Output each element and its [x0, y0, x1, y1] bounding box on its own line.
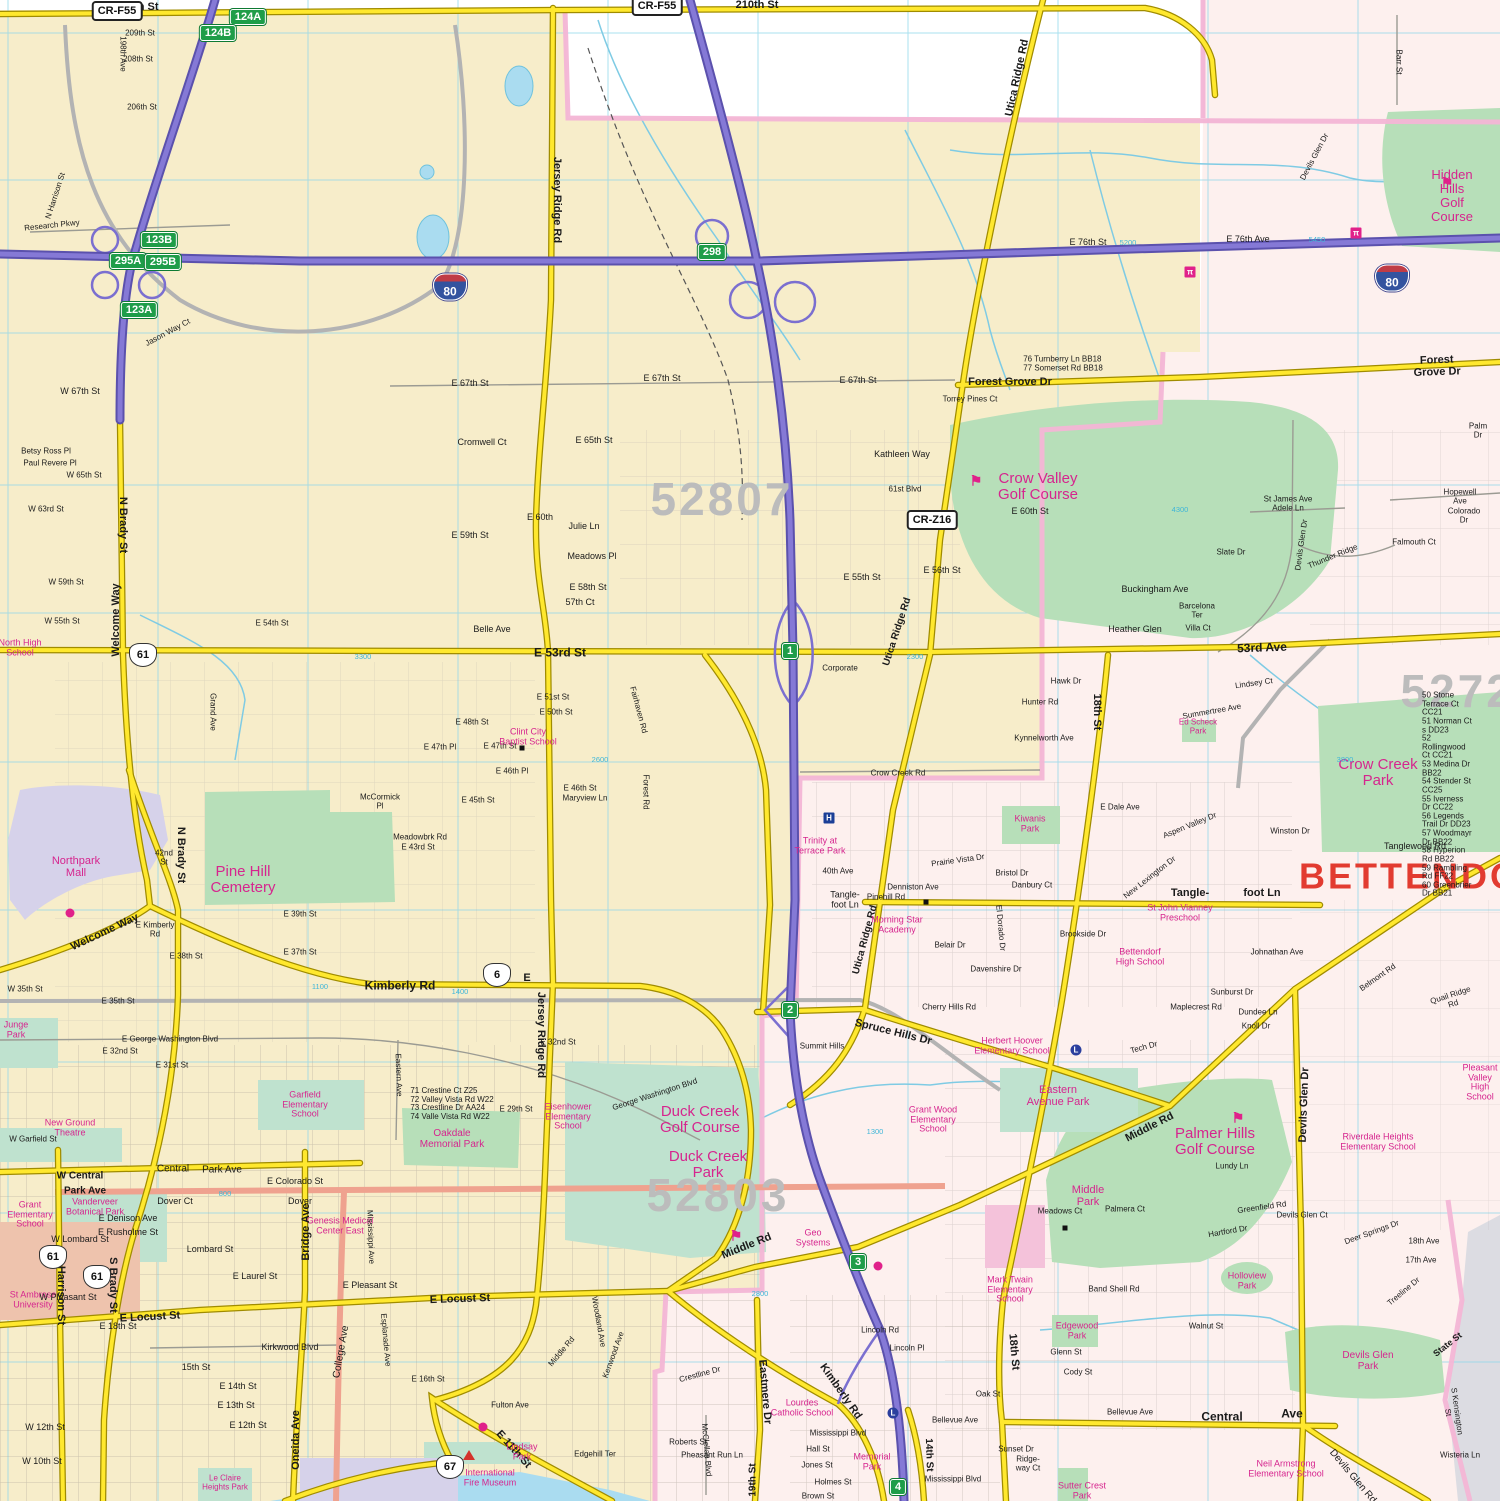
map-label: 209th St — [125, 30, 155, 39]
museum-icon — [463, 1450, 475, 1460]
map-label: Slate Dr — [1217, 549, 1246, 558]
map-label: E Colorado St — [267, 1177, 323, 1187]
map-label: E 32nd St — [540, 1039, 575, 1048]
map-label: McClellan Blvd — [699, 1423, 712, 1476]
map-label: W 55th St — [44, 618, 79, 627]
map-label: Vanderveer Botanical Park — [66, 1197, 124, 1216]
map-label: El Dorado Dr — [994, 905, 1007, 952]
map-label: Treeline Dr — [1386, 1276, 1422, 1308]
map-label: E 11th St — [493, 1429, 533, 1471]
map-label: Tangle- — [1171, 888, 1209, 900]
map-label: Clint City Baptist School — [499, 727, 557, 746]
map-label: 19th St — [749, 1463, 760, 1496]
map-label: 52722 — [1401, 667, 1500, 717]
map-label: Oneida Ave — [291, 1410, 303, 1470]
map-label: Winston Dr — [1270, 828, 1310, 837]
map-label: Maryview Ln — [563, 795, 608, 804]
map-label: Crestline Dr — [678, 1365, 721, 1384]
map-label: 17th Ave — [1406, 1257, 1437, 1266]
map-label: New Lexington Dr — [1122, 855, 1177, 901]
map-label: Betsy Ross Pl — [21, 448, 71, 457]
map-label: 1400 — [452, 988, 469, 996]
county-shield: CR-Z16 — [907, 510, 958, 530]
map-label: Ed Scheck Park — [1179, 718, 1217, 735]
map-label: Sunburst Dr — [1211, 989, 1254, 998]
map-label: Prairie Vista Dr — [931, 853, 985, 869]
map-label: Geo Systems — [796, 1228, 831, 1247]
exit-shield: 3 — [850, 1254, 866, 1270]
map-label: Cherry Hills Rd — [922, 1004, 976, 1013]
map-label: Kimberly Rd — [817, 1362, 864, 1422]
map-label: Herbert Hoover Elementary School — [974, 1036, 1050, 1055]
map-label: Lombard St — [187, 1245, 234, 1255]
map-label: Jason Way Ct — [144, 318, 192, 349]
map-label: Utica Ridge Rd — [882, 597, 914, 668]
map-label: Woodland Ave — [589, 1296, 606, 1348]
map-label: Mississippi Ave — [365, 1210, 376, 1264]
map-label: Forest Grove Dr — [1405, 354, 1469, 380]
map-label: 5200 — [1120, 239, 1137, 247]
map-label: Bellevue Ave — [1107, 1409, 1153, 1418]
map-label: E 46th St — [564, 785, 597, 794]
map-label: Denniston Ave — [887, 884, 938, 893]
map-label: 198th Ave — [118, 36, 127, 71]
map-label: 76 Turnberry Ln BB18 77 Somerset Rd BB18 — [1023, 355, 1103, 372]
map-label: Central — [1201, 1411, 1242, 1424]
map-label: E Denison Ave — [99, 1214, 158, 1224]
map-label: 61st Blvd — [889, 486, 922, 495]
map-label: Mark Twain Elementary School — [987, 1275, 1033, 1304]
map-label: Johnathan Ave — [1251, 949, 1304, 958]
map-label: E 14th St — [219, 1382, 256, 1392]
map-label: Cody St — [1064, 1369, 1092, 1378]
exit-shield: 295A — [110, 253, 146, 269]
map-label: E 56th St — [923, 566, 960, 576]
map-label: Devils Glen Dr — [1298, 1067, 1312, 1143]
map-label: Meadowbrk Rd — [393, 834, 447, 843]
map-label: E 76th St — [1069, 238, 1106, 248]
map-label: Holloview Park — [1228, 1271, 1267, 1290]
map-label: Heather Glen — [1108, 625, 1162, 635]
map-label: Walnut St — [1189, 1323, 1223, 1332]
us-shield: 67 — [436, 1455, 464, 1479]
map-label: W 67th St — [60, 387, 100, 397]
map-label: E 35th St — [102, 998, 135, 1007]
map-label: Middle Park — [1072, 1185, 1104, 1209]
map-label: E 45th St — [462, 797, 495, 806]
map-label: Pine Hill Cemetery — [210, 864, 275, 896]
map-label: Deer Springs Dr — [1344, 1219, 1401, 1247]
map-label: Brown St — [802, 1493, 834, 1501]
golf-flag-icon: ⚑ — [1232, 1110, 1245, 1127]
map-label: Jersey Ridge Rd — [534, 992, 546, 1078]
map-label: W 65th St — [66, 472, 101, 481]
map-label: Hartford Dr — [1208, 1224, 1248, 1239]
map-label: E 76th Ave — [1226, 235, 1269, 245]
map-label: Eastmere Dr — [755, 1359, 772, 1425]
map-label: Tangle- foot Ln — [830, 890, 860, 909]
map-label: E 60th — [527, 513, 553, 523]
map-label: Jones St — [801, 1462, 832, 1471]
map-label: Lundy Ln — [1216, 1163, 1249, 1172]
map-label: E 31st St — [156, 1062, 188, 1071]
map-label: Villa Ct — [1185, 625, 1210, 634]
map-label: Grant Wood Elementary School — [909, 1105, 957, 1134]
map-label: Knoll Dr — [1242, 1023, 1270, 1032]
map-label: 42nd St — [155, 849, 173, 866]
map-label: Bettendorf High School — [1116, 947, 1165, 966]
map-label: Middle Rd — [720, 1232, 773, 1263]
map-label: E Pleasant St — [343, 1281, 398, 1291]
map-label: Tanglewood Rd — [1384, 842, 1446, 852]
map-label: State St — [1432, 1331, 1464, 1359]
map-label: Morning Star Academy — [871, 915, 923, 934]
map-label: E — [523, 973, 530, 985]
map-label: Meadows Ct — [1038, 1208, 1082, 1217]
map-label: E 60th St — [1011, 507, 1048, 517]
map-label: Danbury Ct — [1012, 882, 1052, 891]
map-label: E 67th St — [643, 374, 680, 384]
map-label: Forest Rd — [641, 774, 650, 809]
map-label: E 18th St — [99, 1322, 136, 1332]
map-label: W 63rd St — [28, 506, 64, 515]
map-label: Edgewood Park — [1056, 1321, 1099, 1340]
exit-shield: 2 — [782, 1002, 798, 1018]
map-label: Hall St — [806, 1446, 830, 1455]
map-label: Pheasant Run Ln — [681, 1452, 743, 1461]
map-label: E Rusholme St — [98, 1228, 158, 1238]
map-label: E 29th St — [500, 1106, 533, 1115]
school-icon — [520, 746, 525, 751]
us-shield: 61 — [83, 1265, 111, 1289]
map-label: E 32nd St — [102, 1048, 137, 1057]
map-label: E 47th Pl — [424, 744, 456, 753]
map-label: E 12th St — [229, 1421, 266, 1431]
map-label: Buckingham Ave — [1122, 585, 1189, 595]
us-shield: 6 — [483, 963, 511, 987]
map-label: 57th Ct — [565, 598, 594, 608]
map-label: Devils Glen Ct — [1276, 1212, 1327, 1221]
map-label: Fulton Ave — [491, 1402, 529, 1411]
map-label: Hunter Rd — [1022, 699, 1058, 708]
map-label: Quail Ridge Rd — [1427, 984, 1478, 1015]
map-label: Park Ave — [202, 1166, 242, 1177]
map-label: Palmer Hills Golf Course — [1175, 1126, 1255, 1158]
map-label: International Fire Museum — [464, 1468, 517, 1487]
map-label: Devils Glen Dr — [1299, 132, 1331, 182]
map-label: Lindsay Park — [506, 1442, 537, 1461]
map-label: Barcelona Ter — [1179, 602, 1215, 619]
map-label: Lourdes Catholic School — [771, 1398, 834, 1417]
map-label: Utica Ridge Rd — [1004, 39, 1032, 118]
map-label: Riverdale Heights Elementary School — [1340, 1132, 1416, 1151]
county-shield: CR-F55 — [92, 1, 143, 21]
map-label: Barr St — [1394, 50, 1403, 75]
map-label: E 43rd St — [401, 844, 434, 853]
map-label: E 58th St — [569, 583, 606, 593]
map-label: Davenshire Dr — [970, 966, 1021, 975]
map-label: Park Ave — [64, 1187, 106, 1198]
map-label: E 65th St — [575, 436, 612, 446]
map-label: E 13th St — [217, 1401, 254, 1411]
map-label: 1300 — [867, 1128, 884, 1136]
map-label: Bellevue Ave — [932, 1417, 978, 1426]
map-label: Falmouth Ct — [1392, 539, 1436, 548]
school-icon — [1063, 1226, 1068, 1231]
map-label: Colorado Dr — [1446, 507, 1482, 524]
map-label: Julie Ln — [568, 522, 599, 532]
golf-flag-icon: ⚑ — [970, 473, 983, 490]
picnic-icon: π — [1185, 267, 1196, 278]
map-label: E 59th St — [451, 531, 488, 541]
exit-shield: 124B — [200, 25, 236, 41]
map-label: Jersey Ridge Rd — [550, 157, 562, 243]
map-label: Roberts St — [669, 1439, 707, 1448]
map-label: E Kimberly Rd — [136, 921, 175, 938]
map-label: 53rd Ave — [1237, 641, 1287, 656]
map-label: Dover — [288, 1197, 312, 1207]
map-label: North High School — [0, 638, 42, 657]
map-label: Northpark Mall — [52, 856, 100, 880]
golf-flag-icon: ⚑ — [1441, 175, 1454, 192]
map-label: Crow Valley Golf Course — [998, 471, 1078, 503]
map-label: George Washington Blvd — [612, 1077, 699, 1113]
map-label: Belmont Rd — [1358, 962, 1397, 993]
map-label: W Central — [57, 1172, 104, 1183]
map-label: Kirkwood Blvd — [261, 1343, 318, 1353]
map-label: Ridge- way Ct — [1016, 1455, 1040, 1472]
map-label: Oak St — [976, 1391, 1000, 1400]
map-label: W Lombard St — [51, 1235, 109, 1245]
exit-shield: 4 — [890, 1479, 906, 1495]
map-label: W 12th St — [25, 1423, 65, 1433]
map-label: Sutter Crest Park — [1058, 1481, 1106, 1500]
map-label: 2600 — [592, 756, 609, 764]
map-label: Bristol Dr — [996, 870, 1029, 879]
map-label: S Kensington St — [1440, 1387, 1464, 1437]
map-label: 15th St — [182, 1363, 211, 1373]
map-label: Crow Creek Park — [1338, 757, 1417, 789]
map-label: E 46th Pl — [496, 768, 528, 777]
map-label: Paul Revere Pl — [23, 460, 76, 469]
map-label: 2800 — [752, 1290, 769, 1298]
map-label: Sunset Dr — [998, 1446, 1034, 1455]
map-label: Lincoln Pl — [890, 1345, 925, 1354]
map-label: W 59th St — [48, 579, 83, 588]
map-label: BETTENDORF — [1299, 858, 1500, 897]
map-label: Holmes St — [815, 1479, 852, 1488]
map-label: Mississippi Blvd — [925, 1476, 981, 1485]
map-label: Middle Rd — [547, 1335, 577, 1368]
map-label: 208th St — [123, 56, 153, 65]
map-label: Oakdale Memorial Park — [420, 1129, 484, 1151]
map-label: Devils Glen Dr — [1294, 519, 1310, 571]
map-label: Central — [157, 1165, 189, 1176]
map-label: Glenn St — [1050, 1349, 1081, 1358]
map-label: E 39th St — [284, 911, 317, 920]
map-label: 50 Stone Terrace Ct CC21 51 Norman Ct s … — [1422, 692, 1474, 899]
map-label: W Pleasant St — [39, 1293, 96, 1303]
map-label: Meadows Pl — [567, 552, 616, 562]
map-label: St James Ave Adele Ln — [1264, 495, 1313, 512]
map-label: E 50th St — [540, 709, 573, 718]
map-label: Devils Glen Rd — [1326, 1448, 1377, 1501]
map-label: Grant Elementary School — [7, 1200, 53, 1229]
map-label: Esplanade Ave — [378, 1313, 391, 1367]
map-label: Welcome Way — [69, 912, 141, 954]
golf-flag-icon: ⚑ — [730, 1228, 743, 1245]
map-label: 1100 — [312, 983, 328, 991]
dot-icon — [874, 1262, 883, 1271]
map-label: E 54th St — [256, 620, 289, 629]
map-label: Utica Ridge Rd — [852, 904, 881, 975]
map-label: Corporate — [822, 665, 858, 674]
map-label: W Garfield St — [9, 1136, 57, 1145]
map-label: E George Washington Blvd — [122, 1036, 218, 1045]
map-label: Trinity at Terrace Park — [794, 836, 845, 855]
map-label: E Dale Ave — [1100, 804, 1139, 813]
map-label: E 47th St — [484, 743, 517, 752]
map-label: 71 Crestine Ct Z25 72 Valley Vista Rd W2… — [410, 1087, 493, 1122]
dot-icon — [479, 1423, 488, 1432]
map-label: Summertree Ave — [1182, 703, 1242, 722]
map-label: E Locust St — [119, 1310, 180, 1325]
map-label: E 51st St — [537, 694, 569, 703]
map-label: Dundee Ln — [1238, 1009, 1277, 1018]
map-label: Thunder Ridge — [1307, 543, 1359, 571]
map-label: Hopewell Ave — [1440, 488, 1480, 505]
map-label: N Brady St — [116, 497, 128, 553]
map-label: Kathleen Way — [874, 450, 930, 460]
map-label: Eastern Ave — [393, 1053, 403, 1096]
map-label: Brookside Dr — [1060, 931, 1106, 940]
map-label: 210th St — [736, 0, 779, 12]
map-label: Belair Dr — [934, 942, 965, 951]
hospital-icon: H — [824, 813, 835, 824]
lcircle-icon: L — [1071, 1045, 1082, 1056]
map-label: Band Shell Rd — [1088, 1286, 1139, 1295]
map-label: E Laurel St — [233, 1272, 278, 1282]
interstate-shield: 80 — [1375, 265, 1409, 292]
map-label: E 55th St — [843, 573, 880, 583]
county-shield: CR-F55 — [632, 0, 683, 16]
map-label: Belle Ave — [473, 625, 510, 635]
map-label: 18th St — [1005, 1333, 1020, 1371]
map-label: foot Ln — [1243, 888, 1280, 900]
map-label: 3300 — [355, 653, 372, 661]
map-label: Junge Park — [4, 1020, 29, 1039]
map-label: E 16th St — [412, 1376, 445, 1385]
map-label: E 38th St — [170, 953, 203, 962]
map-label: Cromwell Ct — [457, 438, 506, 448]
map-label: Tech Dr — [1130, 1040, 1159, 1055]
map-label: N Harrison St — [44, 172, 67, 220]
map-label: 40th Ave — [823, 868, 854, 877]
map-label: Middle Rd — [1124, 1111, 1176, 1145]
map-label: Duck Creek Park — [669, 1149, 747, 1181]
map-label: Crow Creek Rd — [871, 770, 926, 779]
exit-shield: 295B — [145, 254, 181, 270]
map-label: Palmera Ct — [1105, 1206, 1145, 1215]
map-label: S Brady St — [106, 1257, 118, 1313]
map-label: Duck Creek Golf Course — [660, 1104, 740, 1136]
map-label: 52807 — [651, 475, 794, 525]
map-label: N Brady St — [174, 827, 186, 883]
us-shield: 61 — [39, 1245, 67, 1269]
dot-icon — [66, 909, 75, 918]
map-label: E 37th St — [284, 949, 317, 958]
map-label: Le Claire Heights Park — [202, 1474, 248, 1491]
map-label: Mississippi Blvd — [810, 1430, 866, 1439]
exit-shield: 124A — [230, 9, 266, 25]
map-label: 18th Ave — [1409, 1238, 1440, 1247]
map-label: Pinehill Rd — [867, 894, 905, 903]
map-label: Ave — [1281, 1408, 1303, 1421]
exit-shield: 123A — [121, 302, 157, 318]
map-label: W 10th St — [22, 1457, 62, 1467]
map-label: Lincoln Rd — [861, 1327, 899, 1336]
map-label: E 67th St — [839, 376, 876, 386]
map-label: E 48th St — [456, 719, 489, 728]
map-label: Lindsey Ct — [1235, 677, 1274, 691]
school-icon — [924, 900, 929, 905]
picnic-icon: π — [1351, 228, 1362, 239]
exit-shield: 1 — [782, 643, 798, 659]
map-label: 52803 — [647, 1171, 790, 1221]
map-label: St John Vianney Preschool — [1147, 903, 1212, 922]
map-label: 18th St — [1090, 694, 1102, 731]
map-label: 800 — [219, 1190, 232, 1198]
map-label: E 67th St — [451, 379, 488, 389]
map-label: Eastern Avenue Park — [1027, 1085, 1090, 1109]
map-label: 2300 — [907, 653, 924, 661]
map-label: E 53rd St — [534, 647, 586, 660]
map-label: Edgehill Ter — [574, 1451, 616, 1460]
map-label: Pleasant Valley High School — [1462, 1064, 1497, 1103]
map-label: Devils Glen Park — [1342, 1351, 1393, 1373]
map-label: Eisenhower Elementary School — [544, 1102, 591, 1131]
map-label: Research Pkwy — [24, 219, 80, 233]
map-label: Greenfield Rd — [1237, 1200, 1287, 1215]
map-label: Dover Ct — [157, 1197, 193, 1207]
map-label: Genesis Medical Center East — [307, 1216, 374, 1235]
map-label: 5450 — [1309, 236, 1326, 244]
map-label: Torrey Pines Ct — [943, 396, 998, 405]
map-label: Welcome Way — [111, 583, 123, 656]
map-label: Hawk Dr — [1051, 678, 1082, 687]
map-label: Summit Hills — [800, 1043, 844, 1052]
map-label: Forest Grove Dr — [968, 377, 1052, 389]
map-label: McCormick Pl — [360, 793, 400, 810]
map-label: College Ave — [332, 1325, 352, 1379]
map-label: Maplecrest Rd — [1170, 1004, 1222, 1013]
us-shield: 61 — [129, 643, 157, 667]
interstate-shield: 80 — [433, 274, 467, 301]
map-label: 14th St — [922, 1438, 934, 1472]
map-label: Garfield Elementary School — [282, 1090, 328, 1119]
map-overlay: E 90th St210th St209th St208th St198th A… — [0, 0, 1500, 1501]
map-label: St Ambrose University — [10, 1290, 57, 1309]
map-label: 4300 — [1172, 506, 1189, 514]
map-label: Fairhaven Rd — [628, 686, 649, 735]
map-label: Kiwanis Park — [1014, 814, 1045, 833]
map-label: Bridge Ave — [301, 1203, 313, 1260]
map-label: W 35th St — [7, 986, 42, 995]
map-label: Kynnelworth Ave — [1014, 735, 1073, 744]
map-label: Wisteria Ln — [1440, 1452, 1480, 1461]
map-label: New Ground Theatre — [45, 1118, 96, 1137]
map-label: Memorial Park — [853, 1452, 890, 1471]
